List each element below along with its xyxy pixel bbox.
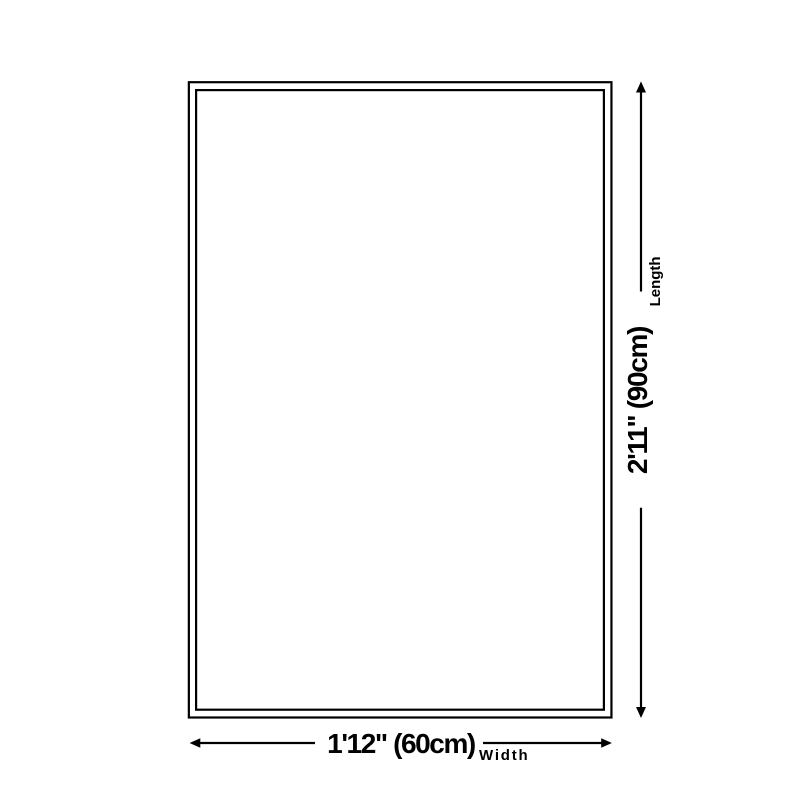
svg-text:2'11" (90cm): 2'11" (90cm): [622, 327, 653, 474]
svg-text:Length: Length: [647, 256, 664, 306]
svg-text:Width: Width: [479, 747, 530, 764]
svg-text:1'12" (60cm): 1'12" (60cm): [327, 728, 475, 759]
